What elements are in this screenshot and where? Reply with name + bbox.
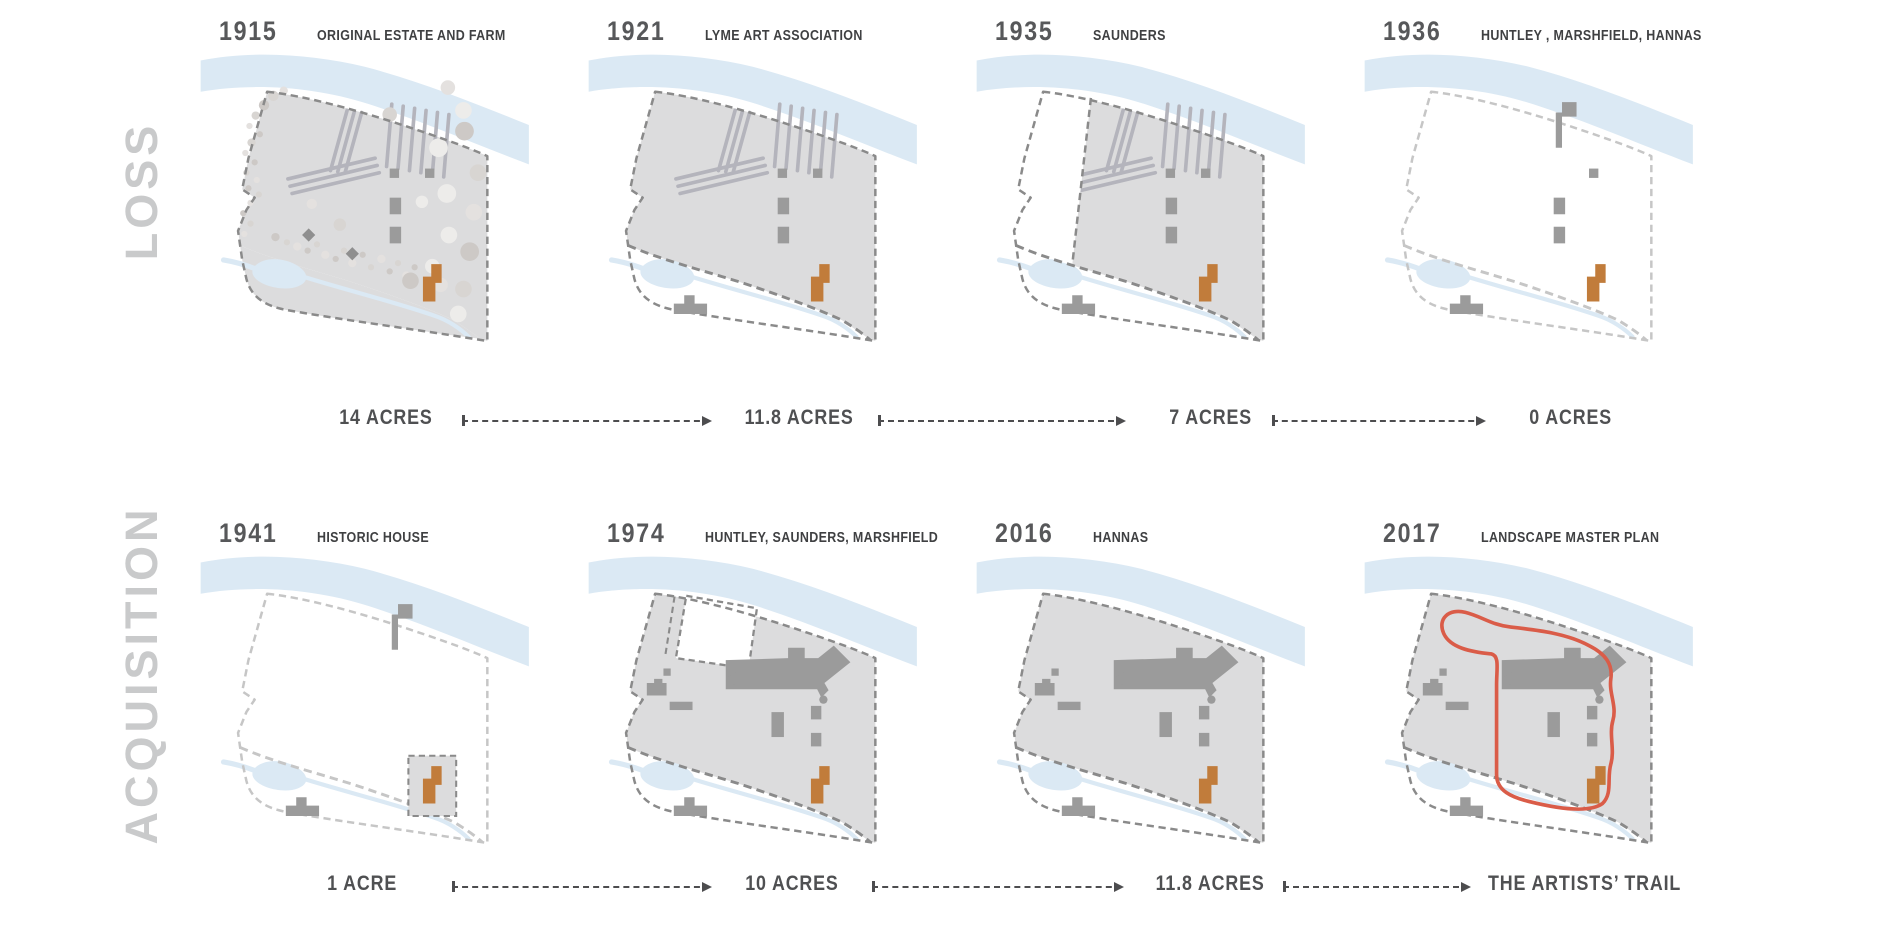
map-canvas-1935: [961, 46, 1306, 368]
map-canvas-2017: [1349, 548, 1694, 870]
panel-year: 1921: [607, 16, 666, 47]
panel-1974: 1974 HUNTLEY, SAUNDERS, MARSHFIELD: [573, 518, 918, 870]
acres-value: 11.8 ACRES: [1100, 872, 1320, 898]
acres-value: 1 ACRE: [252, 872, 472, 898]
panel-year: 1936: [1383, 16, 1442, 47]
panel-header: 1936 HUNTLEY , MARSHFIELD, HANNAS: [1383, 16, 1738, 46]
panel-header: 1915 ORIGINAL ESTATE AND FARM: [219, 16, 536, 46]
timeline-arrow: [1283, 886, 1469, 888]
panel-title: HANNAS: [1093, 530, 1148, 546]
panel-year: 2017: [1383, 518, 1442, 549]
map-2016: [961, 548, 1306, 870]
panel-1935: 1935 SAUNDERS: [961, 16, 1306, 368]
panel-year: 2016: [995, 518, 1054, 549]
panel-2017: 2017 LANDSCAPE MASTER PLAN: [1349, 518, 1694, 870]
panel-header: 2016 HANNAS: [995, 518, 1158, 548]
map-canvas-1936: [1349, 46, 1694, 368]
panel-1915: 1915 ORIGINAL ESTATE AND FARM: [185, 16, 530, 368]
map-1941: [185, 548, 530, 870]
panel-1921: 1921 LYME ART ASSOCIATION: [573, 16, 918, 368]
row-label-acquisition: ACQUISITION: [114, 465, 170, 885]
map-2017: [1349, 548, 1694, 870]
map-canvas-1915: [185, 46, 530, 368]
map-canvas-2016: [961, 548, 1306, 870]
map-canvas-1941: [185, 548, 530, 870]
row-label-acquisition-text: ACQUISITION: [116, 506, 168, 845]
map-canvas-1921: [573, 46, 918, 368]
timeline-arrow: [872, 886, 1122, 888]
panel-header: 1921 LYME ART ASSOCIATION: [607, 16, 888, 46]
panel-1941: 1941 HISTORIC HOUSE: [185, 518, 530, 870]
row-label-loss: LOSS: [114, 0, 170, 401]
map-1915: [185, 46, 530, 368]
map-canvas-1974: [573, 548, 918, 870]
acres-value: 7 ACRES: [1101, 406, 1321, 432]
panel-year: 1974: [607, 518, 666, 549]
panel-title: LYME ART ASSOCIATION: [705, 28, 863, 44]
panel-header: 1974 HUNTLEY, SAUNDERS, MARSHFIELD: [607, 518, 976, 548]
timeline-arrow: [1272, 420, 1484, 422]
panel-header: 2017 LANDSCAPE MASTER PLAN: [1383, 518, 1688, 548]
map-1974: [573, 548, 918, 870]
panel-title: LANDSCAPE MASTER PLAN: [1481, 530, 1659, 546]
panel-title: HUNTLEY , MARSHFIELD, HANNAS: [1481, 28, 1702, 44]
map-1935: [961, 46, 1306, 368]
panel-title: ORIGINAL ESTATE AND FARM: [317, 28, 506, 44]
timeline-arrow: [462, 420, 710, 422]
acres-value: THE ARTISTS’ TRAIL: [1455, 872, 1715, 898]
panel-title: SAUNDERS: [1093, 28, 1166, 44]
timeline-arrow: [878, 420, 1124, 422]
timeline-arrow: [452, 886, 710, 888]
panel-header: 1941 HISTORIC HOUSE: [219, 518, 447, 548]
panel-title: HISTORIC HOUSE: [317, 530, 429, 546]
panel-year: 1935: [995, 16, 1054, 47]
land-history-diagram: LOSS ACQUISITION 1915 ORIGINAL ESTATE AN…: [0, 0, 1900, 927]
panel-year: 1941: [219, 518, 278, 549]
map-1936: [1349, 46, 1694, 368]
acres-value: 10 ACRES: [682, 872, 902, 898]
acres-value: 0 ACRES: [1461, 406, 1681, 432]
panel-header: 1935 SAUNDERS: [995, 16, 1178, 46]
panel-title: HUNTLEY, SAUNDERS, MARSHFIELD: [705, 530, 938, 546]
panel-year: 1915: [219, 16, 278, 47]
row-label-loss-text: LOSS: [116, 122, 168, 261]
panel-1936: 1936 HUNTLEY , MARSHFIELD, HANNAS: [1349, 16, 1694, 368]
map-1921: [573, 46, 918, 368]
acres-value: 11.8 ACRES: [689, 406, 909, 432]
panel-2016: 2016 HANNAS: [961, 518, 1306, 870]
